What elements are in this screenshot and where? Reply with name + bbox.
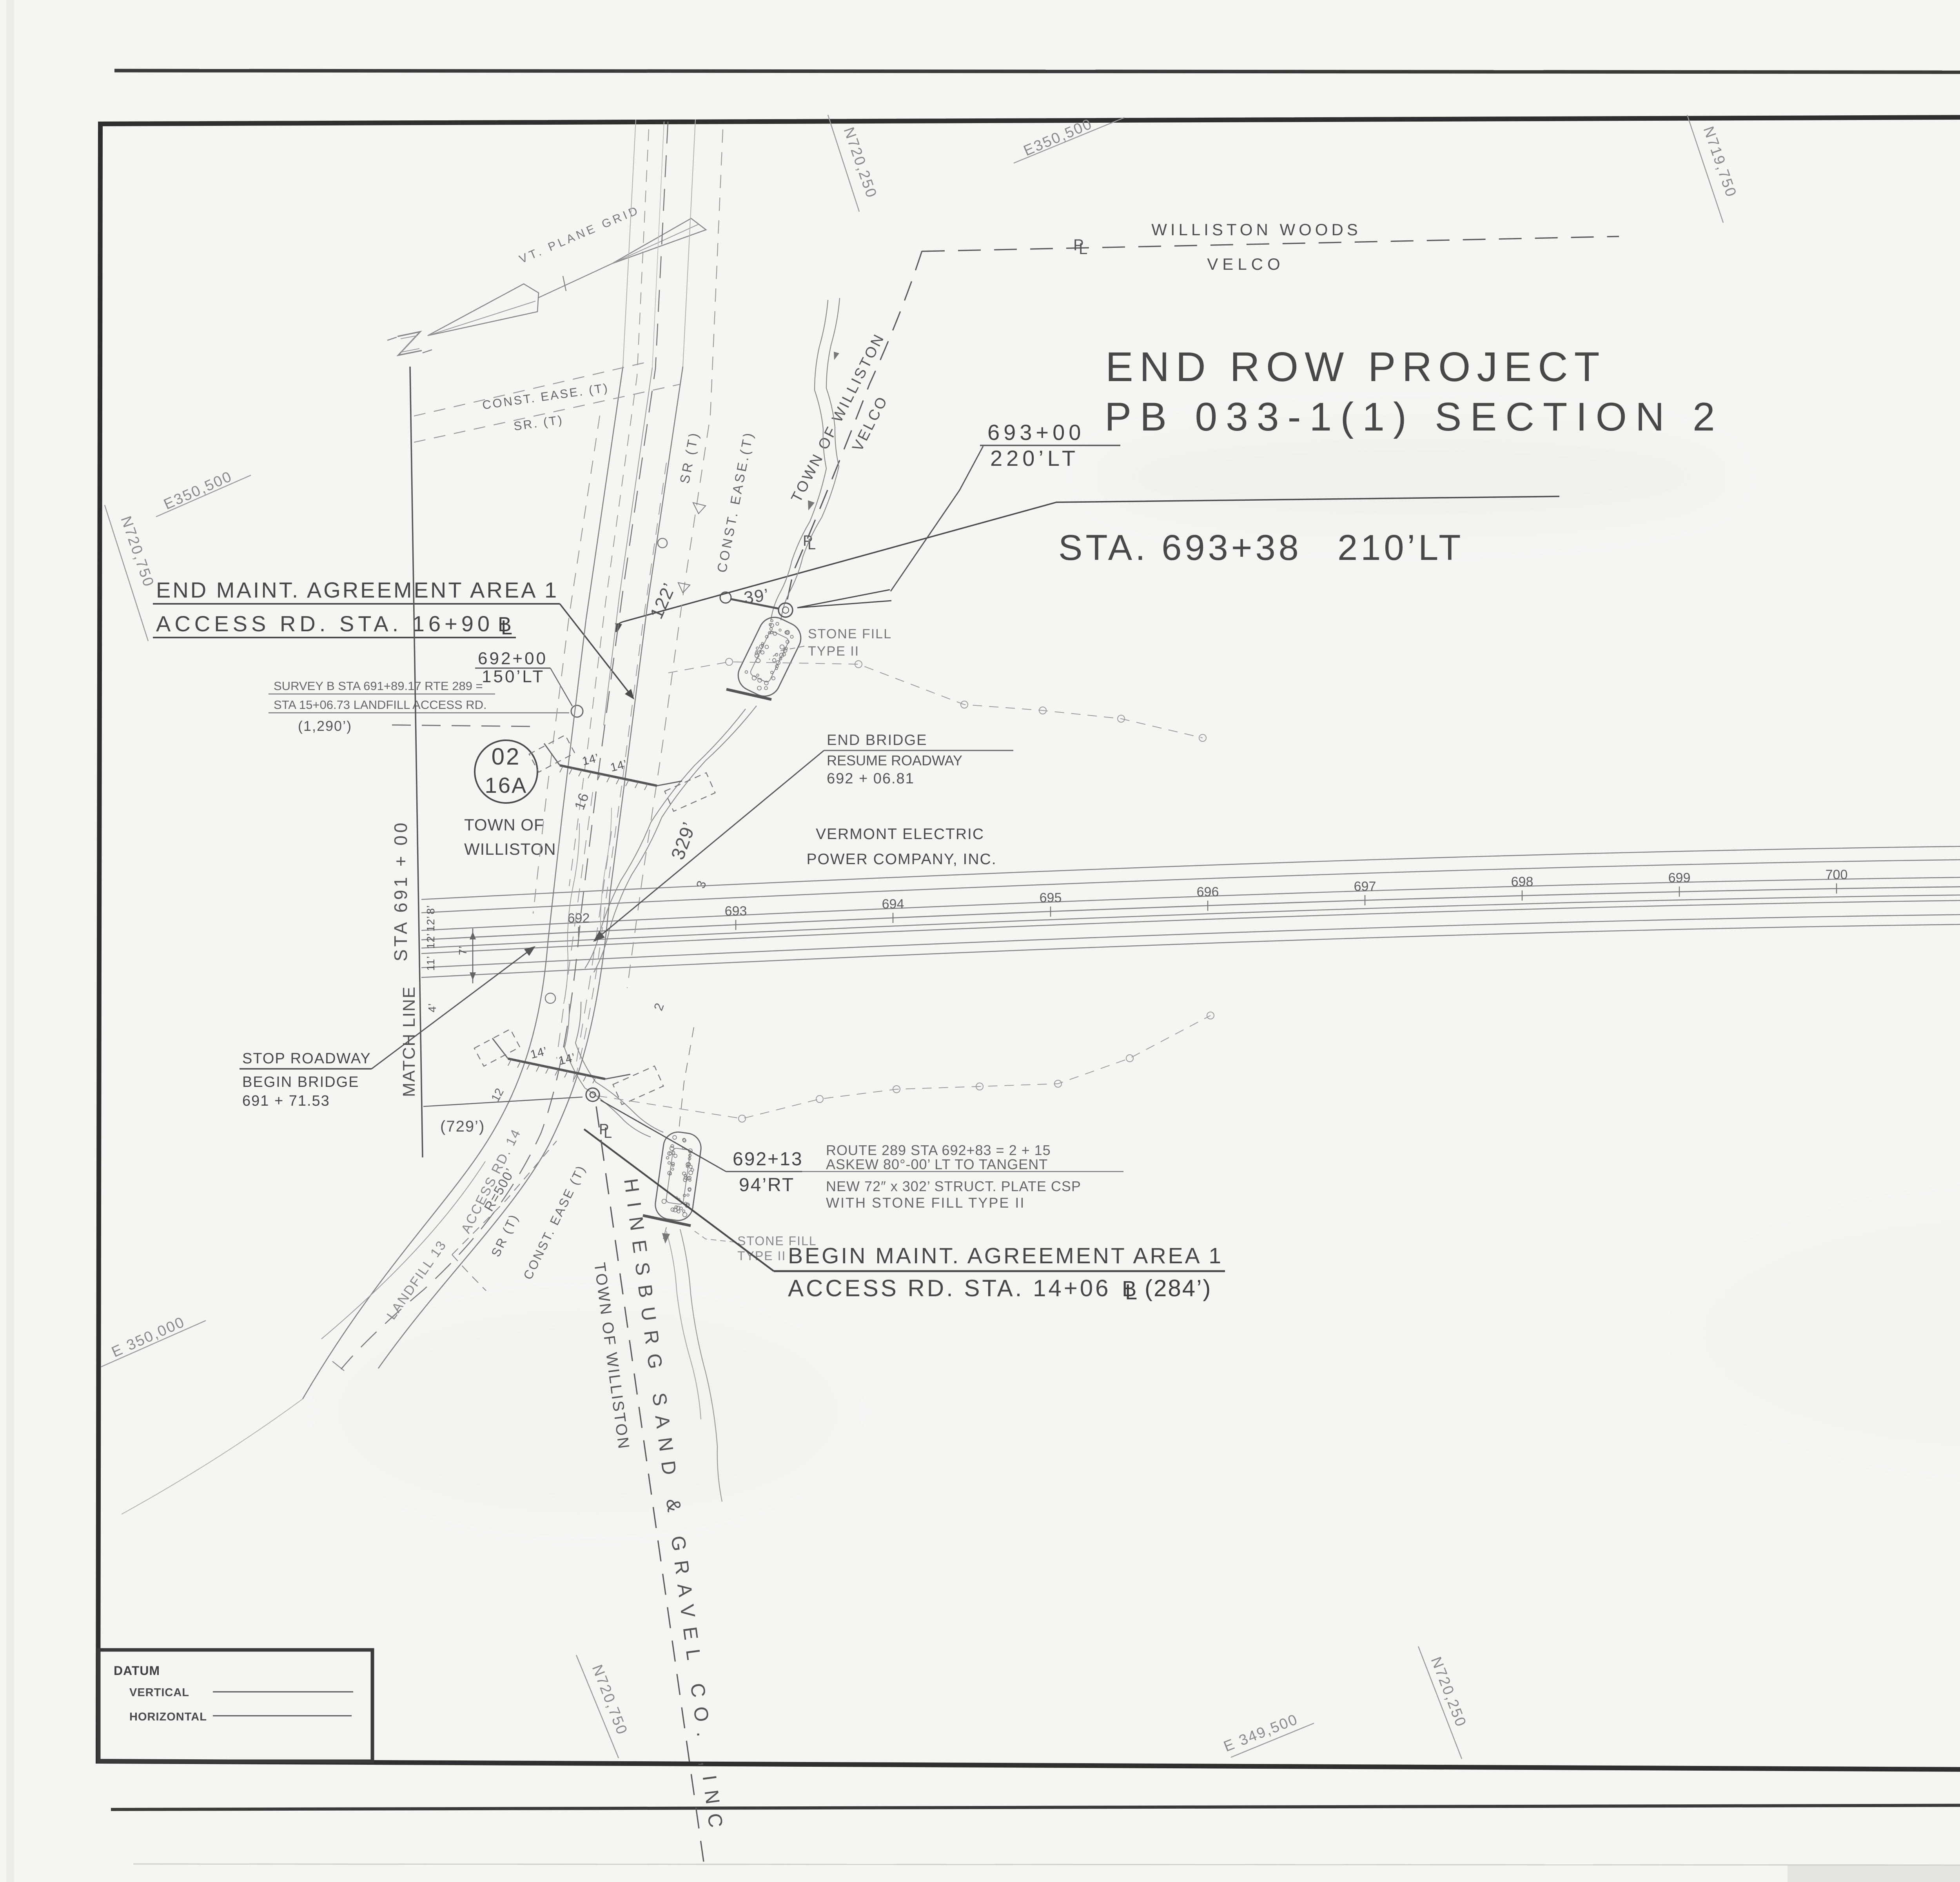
- svg-text:WILLISTON WOODS: WILLISTON WOODS: [1151, 220, 1361, 239]
- svg-text:L: L: [501, 616, 512, 639]
- svg-text:TYPE II: TYPE II: [808, 644, 859, 659]
- svg-text:692 + 06.81: 692 + 06.81: [827, 770, 915, 787]
- svg-text:ACCESS RD. STA. 14+06: ACCESS RD. STA. 14+06: [788, 1275, 1111, 1301]
- svg-text:220’LT: 220’LT: [990, 446, 1079, 470]
- svg-text:692+00: 692+00: [478, 649, 548, 668]
- svg-text:695: 695: [1040, 890, 1062, 905]
- svg-text:STONE FILL: STONE FILL: [808, 627, 892, 641]
- svg-text:RESUME ROADWAY: RESUME ROADWAY: [827, 752, 962, 768]
- svg-text:694: 694: [882, 897, 904, 912]
- svg-text:WILLISTON: WILLISTON: [464, 840, 556, 858]
- svg-text:END MAINT. AGREEMENT AREA 1: END MAINT. AGREEMENT AREA 1: [156, 578, 559, 602]
- svg-text:END ROW PROJECT: END ROW PROJECT: [1105, 344, 1606, 390]
- svg-text:691 + 71.53: 691 + 71.53: [242, 1093, 330, 1109]
- svg-text:692: 692: [568, 911, 590, 926]
- svg-text:693: 693: [725, 904, 747, 919]
- svg-text:VERTICAL: VERTICAL: [129, 1686, 189, 1699]
- svg-text:(1,290’): (1,290’): [298, 718, 352, 734]
- svg-text:VERMONT ELECTRIC: VERMONT ELECTRIC: [816, 826, 984, 843]
- svg-text:94’RT: 94’RT: [739, 1175, 795, 1195]
- svg-text:NEW 72″ x 302’ STRUCT. PLA: NEW 72″ x 302’ STRUCT. PLATE CSP: [826, 1178, 1081, 1194]
- svg-text:DATUM: DATUM: [114, 1664, 160, 1678]
- svg-text:L: L: [808, 536, 816, 553]
- svg-text:L: L: [1079, 240, 1087, 258]
- svg-text:150’LT: 150’LT: [482, 667, 545, 686]
- svg-text:39’: 39’: [743, 585, 771, 608]
- svg-text:699: 699: [1668, 870, 1691, 885]
- svg-text:L: L: [604, 1125, 612, 1141]
- svg-text:696: 696: [1197, 885, 1219, 899]
- svg-text:MATCH LINE: MATCH LINE: [399, 986, 419, 1097]
- svg-text:ASKEW 80°-00’ LT TO TANGENT: ASKEW 80°-00’ LT TO TANGENT: [826, 1156, 1048, 1172]
- svg-text:STA. 693+38: STA. 693+38: [1058, 528, 1302, 568]
- svg-text:11’: 11’: [425, 956, 437, 971]
- svg-text:(729’): (729’): [440, 1118, 485, 1135]
- svg-text:HORIZONTAL: HORIZONTAL: [129, 1711, 207, 1723]
- svg-text:697: 697: [1354, 879, 1376, 894]
- svg-text:8’: 8’: [425, 905, 437, 914]
- svg-text:STOP ROADWAY: STOP ROADWAY: [242, 1050, 371, 1067]
- svg-text:WITH STONE FILL TYPE II: WITH STONE FILL TYPE II: [826, 1195, 1025, 1211]
- svg-text:210’LT: 210’LT: [1338, 528, 1464, 568]
- svg-text:VELCO: VELCO: [1207, 255, 1284, 273]
- svg-text:TYPE II: TYPE II: [737, 1249, 786, 1263]
- svg-text:END BRIDGE: END BRIDGE: [827, 732, 927, 748]
- svg-text:L: L: [1125, 1279, 1137, 1304]
- svg-text:698: 698: [1511, 874, 1534, 889]
- svg-text:BEGIN MAINT. AGREEMENT AREA 1: BEGIN MAINT. AGREEMENT AREA 1: [788, 1243, 1223, 1268]
- svg-text:700: 700: [1826, 867, 1848, 882]
- svg-text:TOWN OF: TOWN OF: [464, 816, 544, 834]
- svg-text:692+13: 692+13: [733, 1149, 803, 1170]
- svg-text:12’: 12’: [425, 933, 437, 949]
- svg-text:02: 02: [492, 743, 521, 770]
- svg-text:7’: 7’: [457, 946, 469, 955]
- svg-text:STA 15+06.73 LANDFILL ACCESS R: STA 15+06.73 LANDFILL ACCESS RD.: [274, 698, 487, 712]
- svg-text:ACCESS RD. STA. 16+90: ACCESS RD. STA. 16+90: [156, 611, 494, 636]
- svg-text:693+00: 693+00: [987, 420, 1085, 445]
- svg-text:ROUTE 289 STA 692+83 = 2: ROUTE 289 STA 692+83 = 2 + 15: [826, 1142, 1051, 1158]
- svg-text:SURVEY B STA 691+89.17 RTE 289: SURVEY B STA 691+89.17 RTE 289 =: [274, 679, 483, 693]
- svg-text:PB 033-1(1) SECTION 2: PB 033-1(1) SECTION 2: [1105, 394, 1724, 439]
- svg-text:16A: 16A: [485, 773, 528, 797]
- svg-text:POWER COMPANY, INC.: POWER COMPANY, INC.: [806, 851, 996, 868]
- svg-text:12’: 12’: [425, 916, 437, 932]
- svg-text:4’: 4’: [426, 1003, 438, 1012]
- svg-text:(284’): (284’): [1145, 1275, 1212, 1301]
- svg-text:STA 691 + 00: STA 691 + 00: [390, 820, 411, 961]
- svg-text:BEGIN BRIDGE: BEGIN BRIDGE: [242, 1074, 359, 1090]
